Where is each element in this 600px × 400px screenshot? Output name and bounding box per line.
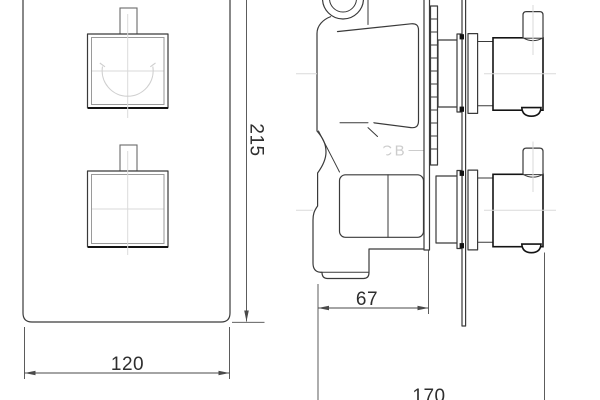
handle-lower [457,148,543,253]
lower-port [436,176,458,243]
dim-panel-width: 120 [25,327,230,379]
dim-overall-label: 170 [412,386,445,400]
dim-height-arrow [244,311,249,322]
lower-handle-cap [522,244,541,253]
upper-rosette-ring [468,34,478,114]
dim-height-label: 215 [246,123,267,156]
technical-drawing: DCB [0,0,600,400]
front-view [23,0,230,322]
lower-screw-top [460,171,464,176]
lower-rosette-ring [468,170,478,250]
upper-rosette [457,34,462,112]
handle-upper [457,12,543,117]
dim-width-label: 120 [111,354,144,375]
outlet-port-outer [323,0,364,19]
upper-screw-bottom [460,107,464,112]
mounting-plate [424,0,430,250]
knob-bottom-lever [120,145,137,171]
upper-handle-cap [522,108,541,117]
upper-screw-top [460,34,464,39]
lower-rosette [457,171,462,249]
dim-overall-depth: 170 [412,253,544,400]
lower-chamber [340,175,424,238]
dim-panel-height: 215 [232,0,267,322]
knob-top-lever [120,8,137,35]
threaded-rod [431,6,438,165]
dim-depth-label: 67 [356,289,378,310]
drawing-canvas: DCB [0,0,600,400]
side-view [296,0,556,326]
upper-port [438,40,458,107]
lower-screw-bottom [460,243,464,248]
